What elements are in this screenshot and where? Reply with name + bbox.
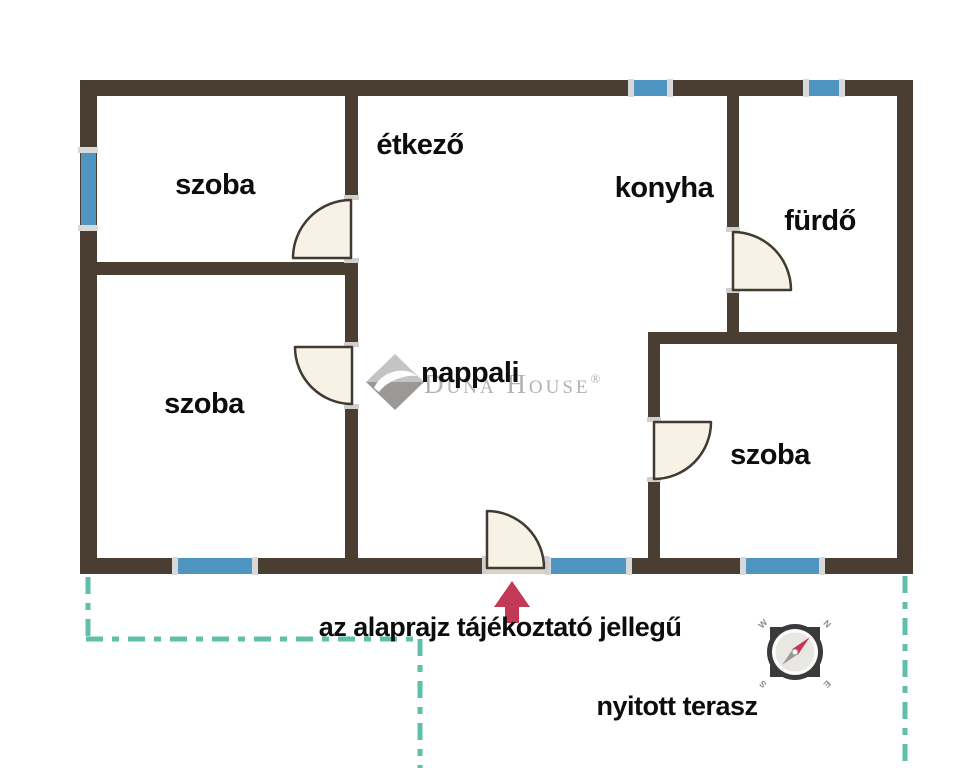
window-cap — [172, 557, 178, 575]
wall-right-room-left-upper — [648, 344, 660, 422]
window-cap — [78, 147, 98, 153]
terrace-label: nyitott terasz — [596, 691, 757, 721]
window-cap — [803, 79, 809, 97]
room-label-living: nappali — [421, 357, 519, 389]
wall-right-room-left-lower — [648, 480, 660, 558]
wall-center-vertical-middle — [345, 260, 358, 347]
room-label-kitchen: konyha — [615, 172, 715, 204]
door-bathroom — [733, 232, 791, 290]
disclaimer-text: az alaprajz tájékoztató jellegű — [319, 612, 682, 642]
wall-right-horizontal — [648, 332, 897, 344]
room-label-bottom-left: szoba — [164, 388, 245, 420]
window-bottom-living — [551, 558, 626, 574]
window-cap — [667, 79, 673, 97]
door-room-top-left — [293, 200, 351, 258]
compass-letter-e: E — [821, 678, 832, 689]
compass-letter-w: W — [756, 617, 769, 630]
door-room-bottom-left — [295, 347, 352, 404]
floor-plan-image: DUNA HOUSE® szoba étkező konyha fürdő na… — [0, 0, 974, 768]
room-label-bathroom: fürdő — [784, 205, 856, 237]
compass-letter-s: S — [757, 678, 768, 689]
wall-outer-bottom-left-segment — [80, 558, 487, 574]
wall-outer-right — [897, 80, 913, 574]
window-cap — [626, 557, 632, 575]
door-entrance — [487, 511, 544, 568]
floor-plan-canvas: DUNA HOUSE® szoba étkező konyha fürdő na… — [0, 0, 974, 768]
door-room-right — [654, 422, 711, 479]
compass-letter-n: N — [821, 618, 833, 630]
wall-bathroom-left-upper — [727, 96, 739, 232]
window-top-bathroom — [809, 80, 839, 96]
wall-outer-top — [80, 80, 913, 96]
window-cap — [252, 557, 258, 575]
compass-icon: W N S E — [756, 617, 833, 690]
wall-center-vertical-upper — [345, 96, 358, 200]
window-left-wall — [81, 153, 96, 225]
window-bottom-room-left — [178, 558, 252, 574]
window-bottom-room-right — [746, 558, 819, 574]
window-cap — [78, 225, 98, 231]
window-top-kitchen — [634, 80, 667, 96]
room-label-top-left: szoba — [175, 169, 256, 201]
room-label-dining: étkező — [376, 129, 463, 161]
window-cap — [628, 79, 634, 97]
window-cap — [839, 79, 845, 97]
watermark-ouse: OUSE — [529, 377, 591, 398]
watermark-registered-icon: ® — [591, 371, 604, 386]
watermark-logo-diamond-dark — [366, 382, 424, 410]
wall-left-rooms-divider — [97, 262, 345, 275]
window-cap — [740, 557, 746, 575]
wall-center-vertical-lower — [345, 407, 358, 558]
walls — [80, 80, 913, 574]
room-label-right: szoba — [730, 439, 811, 471]
compass-pivot — [792, 649, 797, 654]
window-cap — [819, 557, 825, 575]
